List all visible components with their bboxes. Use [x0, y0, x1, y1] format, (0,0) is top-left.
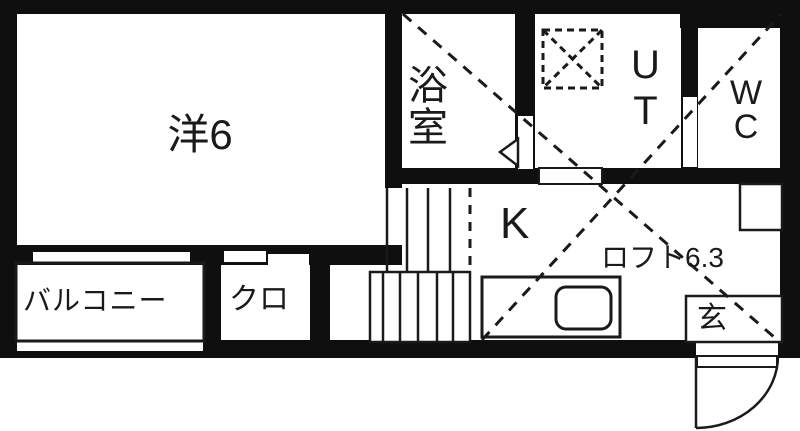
label-western-room: 洋6 — [130, 112, 270, 157]
label-toilet: W C — [725, 76, 767, 144]
label-kitchen: K — [500, 200, 529, 248]
stairs-upper-flight-icon — [387, 188, 450, 272]
label-entrance: 玄 — [697, 303, 727, 335]
entrance-door-swing-icon — [696, 356, 778, 428]
pipe-space-notch — [740, 184, 782, 230]
label-utility: U T — [623, 42, 668, 134]
floorplan-graphics — [0, 0, 800, 431]
kitchen-sink-icon — [556, 287, 611, 329]
label-closet: クロ — [229, 284, 289, 316]
floorplan-canvas: 洋6 浴 室 U T W C K ロフト6.3 バルコニー クロ 玄 — [0, 0, 800, 431]
bathroom-door-swing-icon — [500, 139, 518, 166]
stairs-lower-flight-icon — [370, 272, 470, 342]
label-balcony: バルコニー — [23, 286, 167, 316]
washing-machine-icon — [543, 30, 602, 88]
label-loft: ロフト6.3 — [601, 243, 724, 273]
label-bathroom: 浴 室 — [408, 66, 448, 149]
